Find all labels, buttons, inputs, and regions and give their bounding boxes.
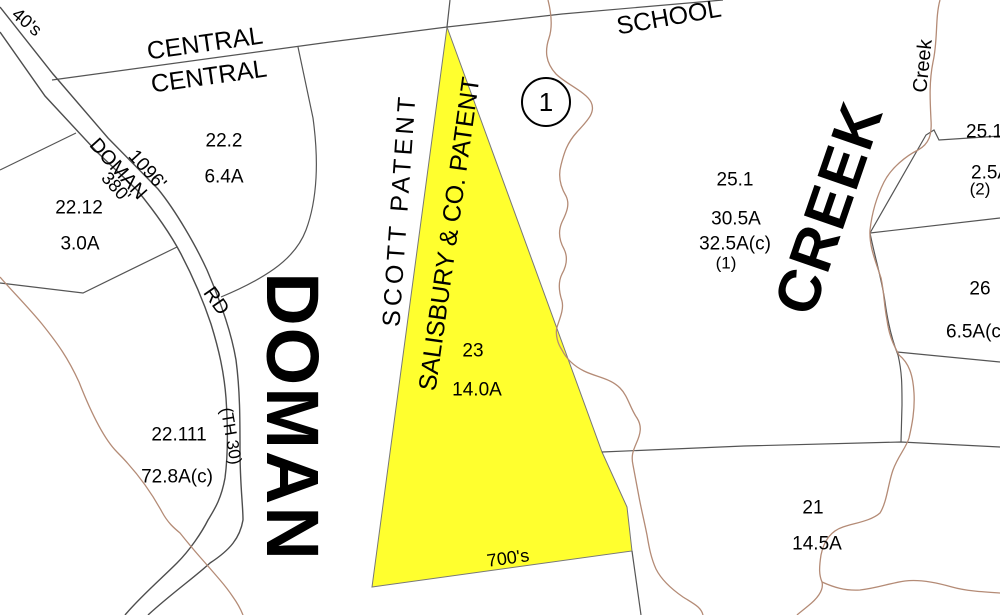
parcel-22-2-area: 6.4A (204, 168, 243, 187)
parcel-26-area: 6.5A(c) (946, 323, 1000, 342)
parcel-21-area: 14.5A (792, 535, 842, 554)
boundary-parcel-22-12-west (0, 133, 76, 170)
district-marker-number: 1 (539, 87, 553, 118)
parcel-25-edge-id: 25.1 (966, 123, 1000, 142)
parcel-21-id: 21 (802, 499, 823, 518)
parcel-25-1-note: (1) (716, 255, 737, 272)
creek-west-line (0, 277, 243, 615)
parcel-22-111-area: 72.8A(c) (141, 468, 213, 487)
parcel-23-area: 14.0A (452, 381, 502, 400)
parcel-22-111-id: 22.111 (151, 426, 206, 445)
parcel-22-12-id: 22.12 (55, 199, 103, 218)
boundary-yellow-corner-south (632, 551, 641, 615)
map-linework (0, 0, 1000, 615)
tax-parcel-map: CENTRAL CENTRAL SCHOOL DOMAN RD (TH 30) … (0, 0, 1000, 615)
boundary-creek-follower (870, 233, 902, 442)
parcel-23-id: 23 (462, 342, 483, 361)
creek-east-branch (822, 580, 1000, 593)
parcel-22-2-id: 22.2 (206, 132, 243, 151)
parcel-25-1-area: 30.5A (711, 210, 761, 229)
boundary-parcel-21-north (602, 442, 1000, 452)
area-name-doman: DOMAN (255, 272, 329, 562)
parcel-25-1-area-calc: 32.5A(c) (699, 235, 771, 254)
parcel-26-id: 26 (969, 280, 990, 299)
boundary-apex-stub (447, 0, 450, 27)
parcel-22-12-area: 3.0A (60, 235, 99, 254)
district-marker-circle: 1 (521, 77, 571, 127)
creek-name-small: Creek (910, 38, 935, 93)
boundary-right-parcel-26-south (897, 352, 1000, 362)
parcel-25-1-id: 25.1 (717, 171, 754, 190)
boundary-right-mid (870, 218, 1000, 233)
doman-rd-casing-west (0, 32, 227, 615)
parcel-25-edge-note: (2) (970, 181, 991, 198)
